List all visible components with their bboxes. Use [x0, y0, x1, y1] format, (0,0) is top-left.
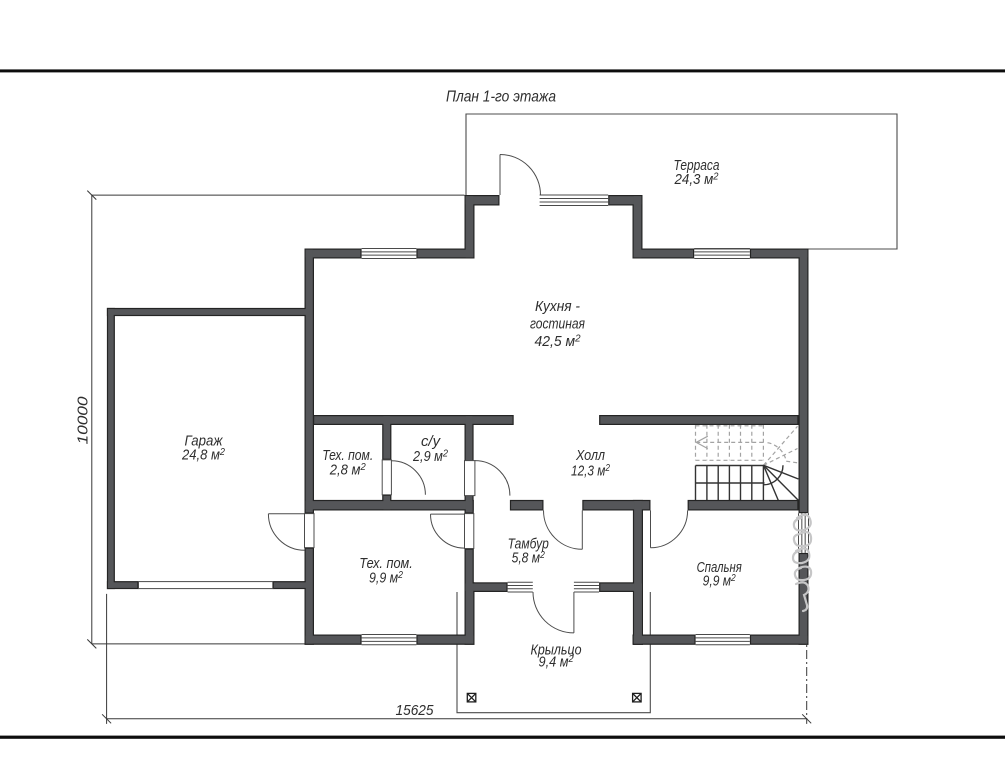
svg-text:5,8 м2: 5,8 м2 — [512, 549, 545, 567]
svg-text:24,8 м2: 24,8 м2 — [181, 446, 225, 464]
svg-text:Кухня -: Кухня - — [535, 298, 580, 315]
svg-text:План 1-го этажа: План 1-го этажа — [446, 89, 556, 106]
svg-text:10000: 10000 — [75, 396, 92, 445]
svg-text:24,3 м2: 24,3 м2 — [674, 171, 719, 189]
svg-text:2,9 м2: 2,9 м2 — [412, 448, 448, 466]
svg-text:гостиная: гостиная — [530, 316, 585, 333]
svg-text:9,9 м2: 9,9 м2 — [369, 569, 403, 587]
svg-text:2,8 м2: 2,8 м2 — [329, 461, 366, 479]
svg-text:12,3 м2: 12,3 м2 — [571, 462, 610, 480]
svg-text:15625: 15625 — [396, 702, 435, 719]
svg-text:9,4 м2: 9,4 м2 — [539, 653, 574, 671]
svg-text:9,9 м2: 9,9 м2 — [703, 572, 736, 590]
svg-text:42,5 м2: 42,5 м2 — [535, 333, 581, 351]
svg-text:Холл: Холл — [575, 447, 605, 464]
svg-text:с/у: с/у — [421, 434, 441, 450]
